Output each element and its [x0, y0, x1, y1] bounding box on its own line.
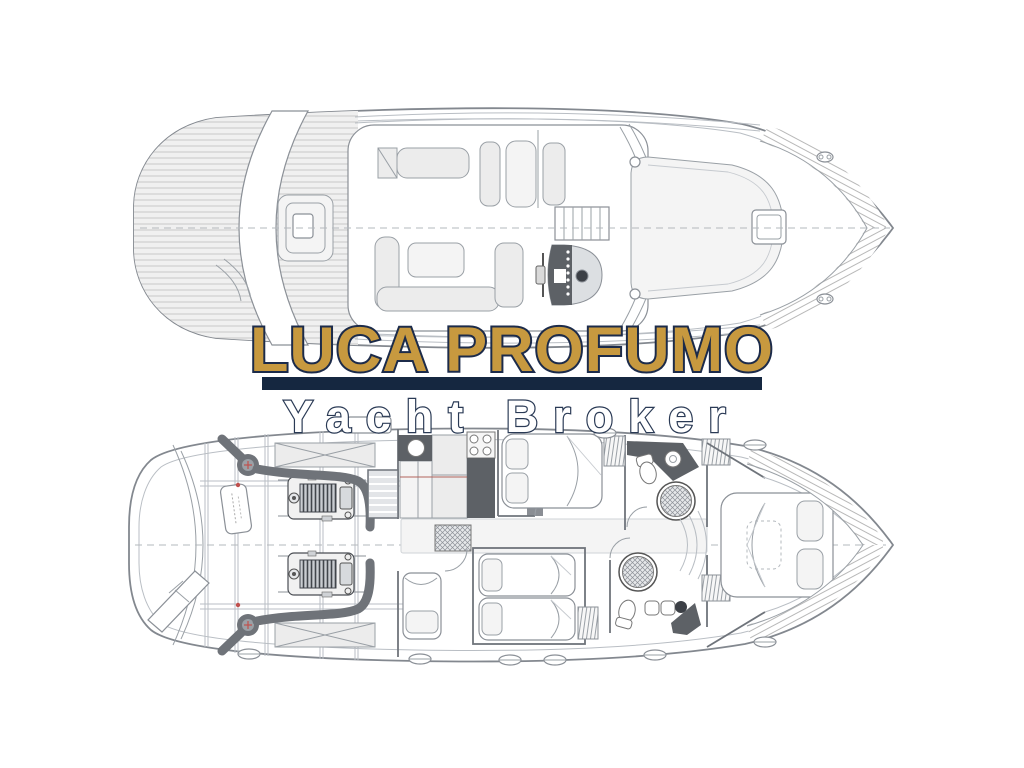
shower-pan [435, 525, 471, 551]
compass [576, 270, 588, 282]
sink [665, 451, 681, 467]
broker-watermark: LUCA PROFUMO Yacht Broker [0, 298, 1024, 448]
companionway-stairs [368, 470, 398, 518]
broker-tagline: Yacht Broker [283, 391, 741, 442]
sink [645, 601, 659, 615]
flybridge-stairs [555, 207, 609, 240]
broker-name: LUCA PROFUMO [250, 315, 774, 385]
foredeck-hatch [752, 210, 786, 244]
divider-bar [262, 377, 762, 390]
engine-starboard [278, 551, 366, 597]
yacht-brochure-page: LUCA PROFUMO Yacht Broker [0, 0, 1024, 768]
lower-deck-plan [115, 415, 915, 675]
wardrobe [578, 607, 598, 639]
